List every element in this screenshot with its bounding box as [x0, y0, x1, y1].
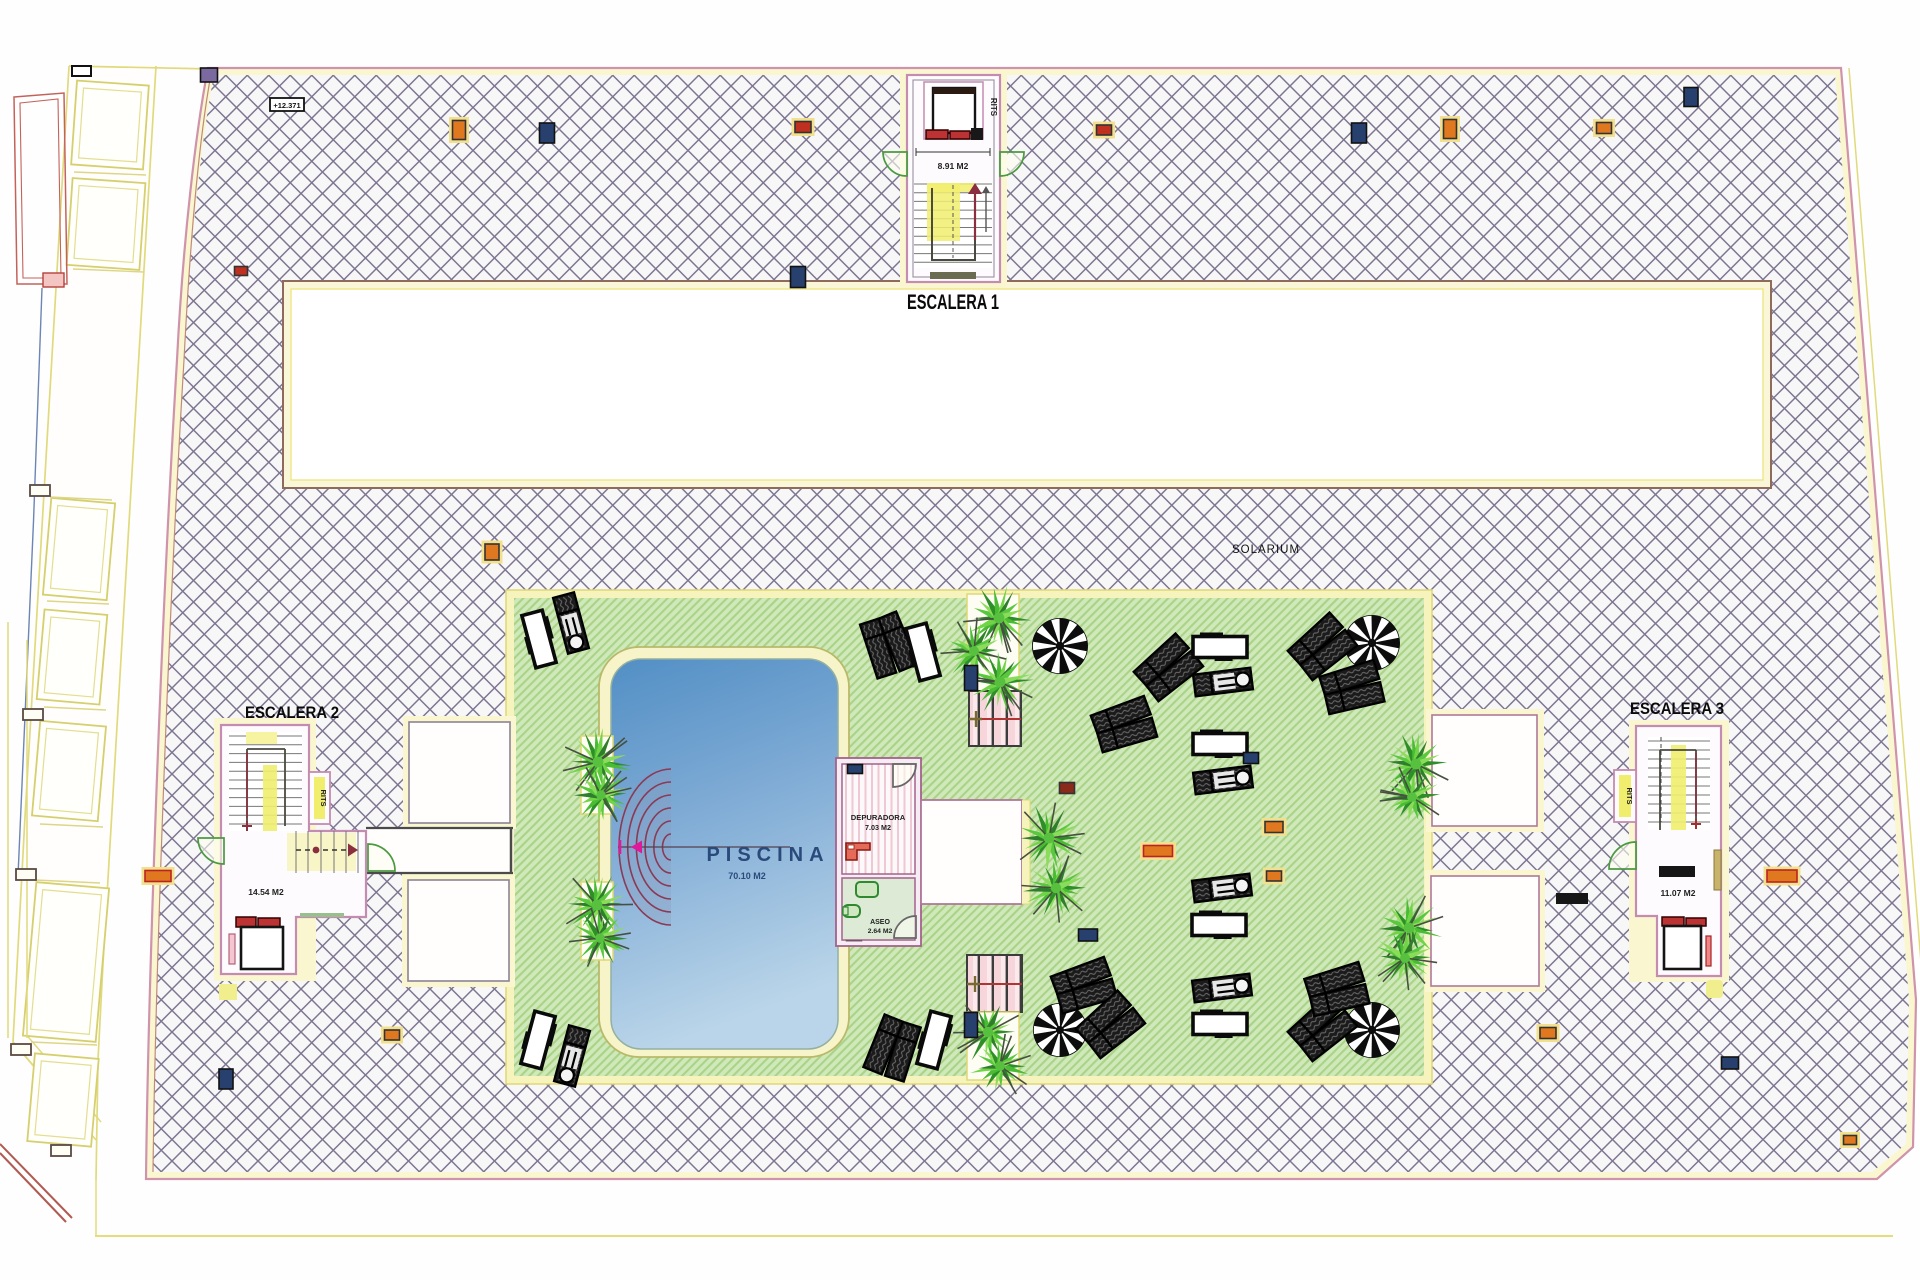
svg-text:ESCALERA 3: ESCALERA 3: [1630, 699, 1724, 718]
svg-text:2.64 M2: 2.64 M2: [868, 928, 893, 935]
svg-text:7.03 M2: 7.03 M2: [865, 823, 891, 832]
svg-text:PISCINA: PISCINA: [706, 844, 829, 866]
svg-text:DEPURADORA: DEPURADORA: [851, 813, 906, 822]
svg-text:+12.371: +12.371: [273, 101, 300, 110]
svg-text:14.54 M2: 14.54 M2: [248, 887, 284, 897]
svg-text:RITS: RITS: [319, 789, 328, 806]
svg-text:ESCALERA 2: ESCALERA 2: [245, 703, 339, 722]
svg-text:ESCALERA 1: ESCALERA 1: [907, 291, 999, 314]
svg-text:11.07 M2: 11.07 M2: [1661, 888, 1696, 898]
svg-text:8.91 M2: 8.91 M2: [938, 161, 969, 171]
svg-text:SOLARIUM: SOLARIUM: [1232, 544, 1300, 556]
svg-text:ASEO: ASEO: [870, 919, 890, 926]
svg-text:70.10 M2: 70.10 M2: [728, 871, 766, 881]
svg-text:RITS: RITS: [989, 98, 998, 117]
svg-text:RITS: RITS: [1625, 787, 1634, 804]
